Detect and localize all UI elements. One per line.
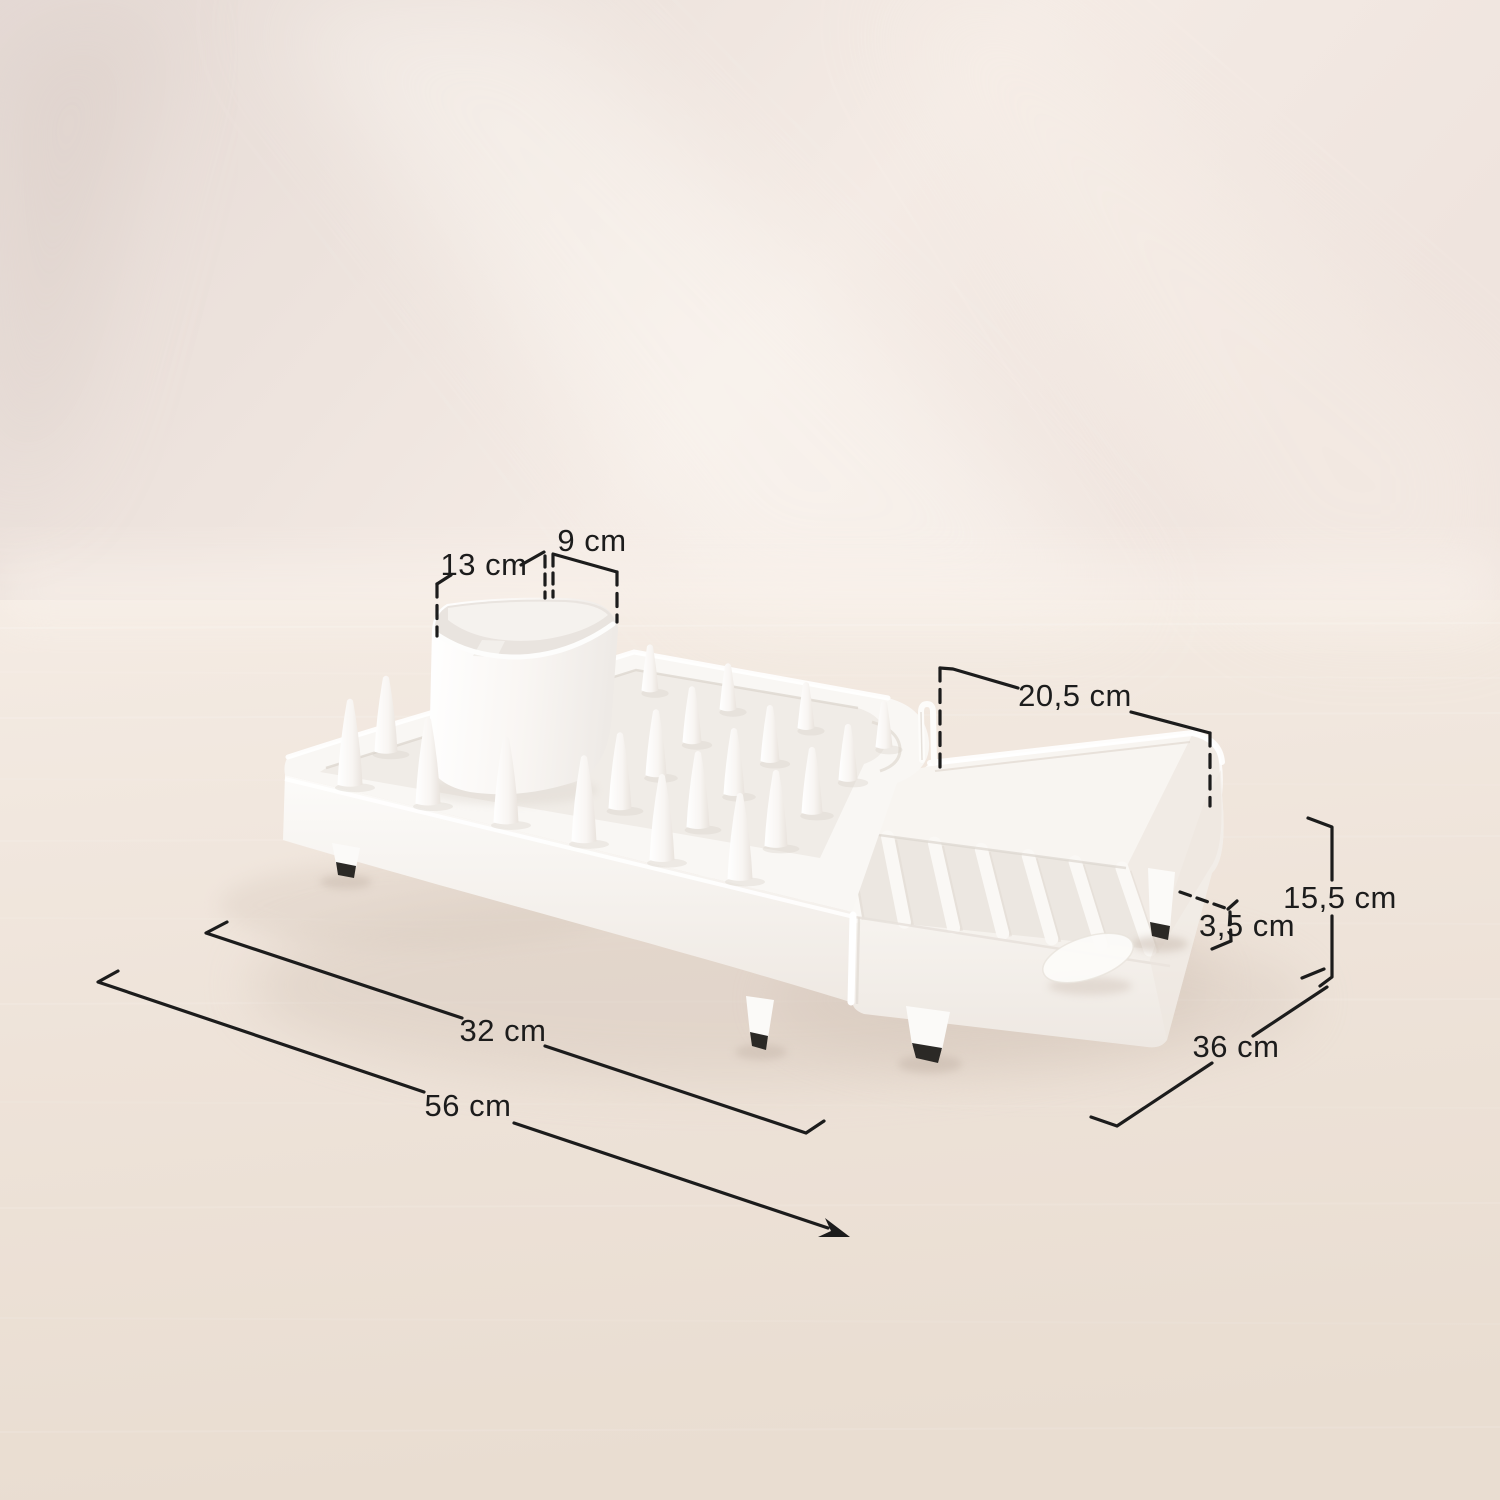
foot-shadow	[1132, 936, 1188, 952]
telescope-seam	[851, 915, 853, 1002]
dim-label-9cm: 9 cm	[557, 523, 626, 558]
dish-rack-dimension-figure: 13 cm 9 cm 20,5 cm 15,5 cm 3,5 cm	[0, 0, 1500, 1500]
dim-label-56cm: 56 cm	[425, 1088, 512, 1123]
dim-label-36cm: 36 cm	[1193, 1029, 1280, 1064]
dim-label-3-5cm: 3,5 cm	[1199, 908, 1295, 943]
product-dimension-image: 13 cm 9 cm 20,5 cm 15,5 cm 3,5 cm	[0, 0, 1500, 1500]
dim-label-13cm: 13 cm	[441, 547, 528, 582]
foot-shadow	[320, 875, 372, 889]
dim-label-20-5cm: 20,5 cm	[1018, 678, 1132, 713]
horizon-glow	[0, 555, 1500, 625]
latch-clip-shade	[921, 712, 922, 760]
dim-label-15-5cm: 15,5 cm	[1283, 880, 1397, 915]
dim-label-32cm: 32 cm	[460, 1013, 547, 1048]
